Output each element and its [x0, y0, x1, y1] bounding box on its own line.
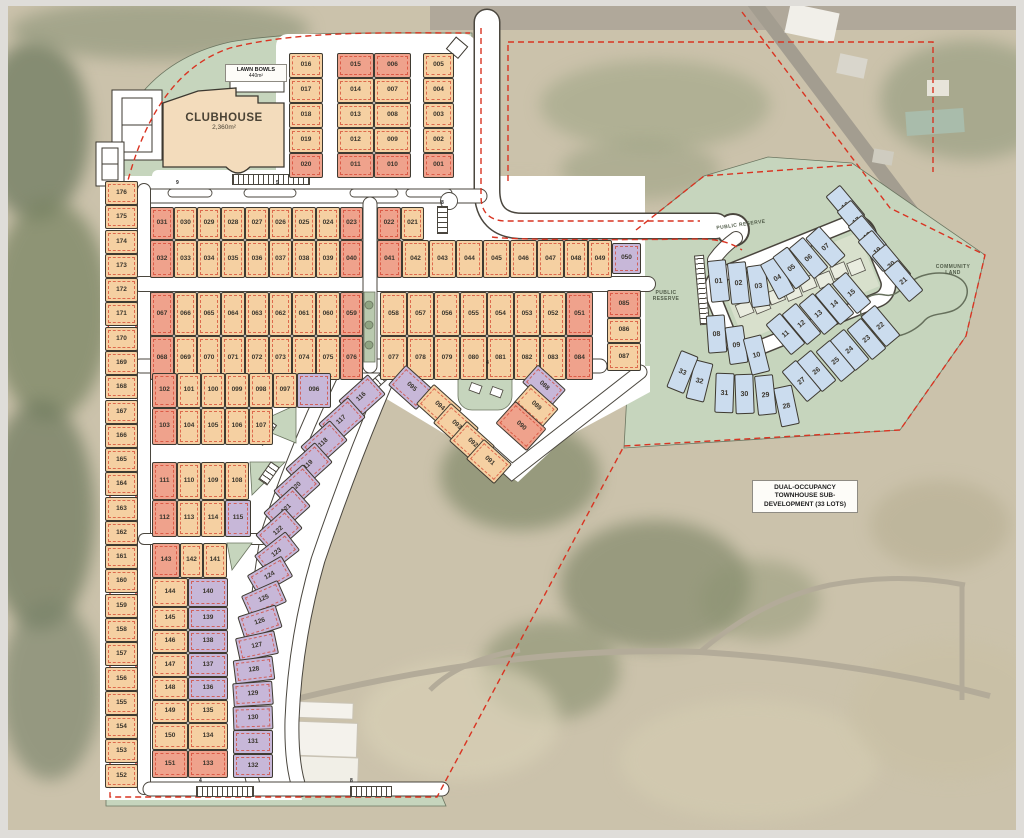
site-plan-image: 1761751741731721711701691681671661651641… [0, 0, 1024, 838]
road-width-marker: 4 [199, 779, 202, 784]
frame-edge [0, 830, 1024, 838]
road-width-marker: 9 [176, 181, 179, 186]
road-width-marker: 8 [350, 779, 353, 784]
frame-edge [1016, 0, 1024, 838]
road-width-marker: 5 [276, 181, 279, 186]
road-marker-layer: 958484 [0, 0, 1024, 838]
frame-edge [0, 0, 8, 838]
road-width-marker: 4 [486, 361, 489, 366]
frame-edge [0, 0, 1024, 6]
road-width-marker: 8 [441, 201, 444, 206]
